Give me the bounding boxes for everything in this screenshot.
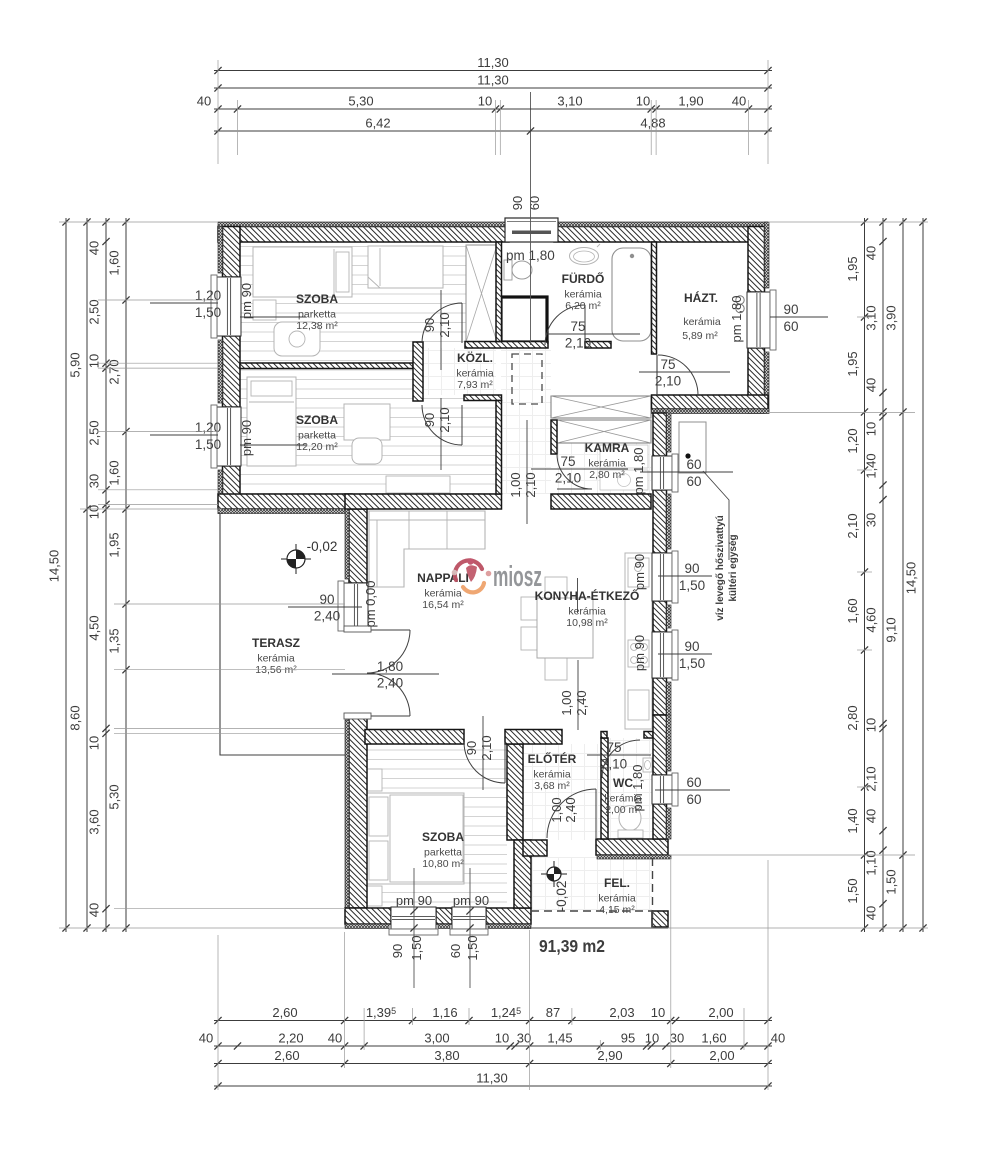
svg-text:FÜRDŐ: FÜRDŐ [562, 271, 605, 286]
svg-text:-0,02: -0,02 [554, 881, 569, 912]
svg-text:4,60: 4,60 [864, 607, 879, 632]
svg-text:HÁZT.: HÁZT. [684, 290, 718, 305]
svg-text:1,95: 1,95 [845, 351, 860, 376]
svg-text:40: 40 [732, 94, 746, 109]
svg-text:2,50: 2,50 [87, 420, 102, 445]
svg-text:4,15 m²: 4,15 m² [599, 904, 635, 916]
svg-text:TERASZ: TERASZ [252, 636, 300, 650]
svg-text:10: 10 [87, 505, 102, 519]
svg-text:2,60: 2,60 [274, 1048, 299, 1063]
svg-text:1,20: 1,20 [845, 428, 860, 453]
svg-text:8,60: 8,60 [68, 705, 83, 730]
svg-text:pm 0,00: pm 0,00 [363, 581, 378, 628]
svg-text:KÖZL.: KÖZL. [457, 350, 493, 365]
svg-text:12,38 m²: 12,38 m² [296, 320, 338, 332]
svg-text:SZOBA: SZOBA [296, 413, 338, 427]
svg-text:parketta: parketta [298, 309, 336, 321]
svg-text:5,90: 5,90 [68, 352, 83, 377]
svg-text:40: 40 [864, 809, 879, 823]
svg-text:6,20 m²: 6,20 m² [565, 300, 601, 312]
svg-text:1,35: 1,35 [107, 628, 122, 653]
svg-text:90: 90 [510, 196, 525, 210]
svg-text:30: 30 [517, 1031, 531, 1046]
svg-text:1,20: 1,20 [195, 288, 221, 303]
svg-text:3,10: 3,10 [557, 94, 582, 109]
svg-text:1,00: 1,00 [549, 797, 564, 822]
svg-text:1,50: 1,50 [884, 869, 899, 894]
svg-text:kerámia: kerámia [568, 606, 606, 618]
svg-text:2,00: 2,00 [709, 1048, 734, 1063]
svg-text:30: 30 [87, 474, 102, 488]
svg-text:2,80: 2,80 [845, 705, 860, 730]
svg-text:3,90: 3,90 [884, 305, 899, 330]
svg-text:1,95: 1,95 [107, 532, 122, 557]
svg-text:miosz: miosz [493, 561, 542, 593]
svg-text:75: 75 [606, 740, 621, 755]
svg-text:2,10: 2,10 [655, 374, 681, 389]
svg-text:40: 40 [199, 1031, 213, 1046]
svg-text:60: 60 [686, 792, 701, 807]
svg-text:pm 1,80: pm 1,80 [729, 296, 744, 343]
svg-text:1,50: 1,50 [195, 305, 221, 320]
svg-text:kerámia: kerámia [456, 368, 494, 380]
svg-text:pm 90: pm 90 [239, 283, 254, 319]
svg-text:SZOBA: SZOBA [296, 292, 338, 306]
svg-text:2,10: 2,10 [523, 472, 538, 497]
svg-text:7,93 m²: 7,93 m² [457, 379, 493, 391]
svg-text:3,10: 3,10 [864, 305, 879, 330]
svg-text:40: 40 [87, 903, 102, 917]
svg-text:2,10: 2,10 [479, 735, 494, 760]
svg-text:10: 10 [864, 422, 879, 436]
svg-text:90: 90 [684, 561, 699, 576]
svg-text:1,50: 1,50 [409, 935, 424, 960]
svg-text:12,20 m²: 12,20 m² [296, 441, 338, 453]
svg-text:parketta: parketta [298, 430, 336, 442]
svg-text:60: 60 [686, 775, 701, 790]
svg-text:3,68 m²: 3,68 m² [534, 780, 570, 792]
svg-text:30: 30 [670, 1031, 684, 1046]
svg-text:1,90: 1,90 [678, 94, 703, 109]
svg-text:2,10: 2,10 [437, 312, 452, 337]
svg-text:75: 75 [560, 454, 575, 469]
svg-text:1,95: 1,95 [845, 256, 860, 281]
svg-text:90: 90 [390, 944, 405, 958]
svg-text:95: 95 [621, 1031, 635, 1046]
svg-text:pm 1,80: pm 1,80 [631, 448, 646, 495]
svg-text:1,50: 1,50 [845, 878, 860, 903]
svg-text:40: 40 [771, 1031, 785, 1046]
svg-text:4,88: 4,88 [640, 116, 665, 131]
svg-text:10: 10 [87, 354, 102, 368]
svg-text:pm 90: pm 90 [632, 554, 647, 590]
svg-text:2,60: 2,60 [272, 1005, 297, 1020]
svg-text:1,50: 1,50 [465, 935, 480, 960]
svg-text:NAPPALI: NAPPALI [417, 571, 469, 585]
svg-text:pm 90: pm 90 [632, 635, 647, 671]
svg-text:91,39 m2: 91,39 m2 [539, 936, 605, 956]
svg-text:10: 10 [645, 1031, 659, 1046]
svg-text:3,60: 3,60 [87, 809, 102, 834]
svg-text:11,30: 11,30 [476, 1071, 508, 1086]
svg-text:pm 90: pm 90 [453, 893, 489, 908]
svg-text:kerámia: kerámia [564, 289, 602, 301]
svg-text:parketta: parketta [424, 847, 462, 859]
svg-text:9,10: 9,10 [884, 617, 899, 642]
svg-text:90: 90 [464, 741, 479, 755]
svg-text:kerámia: kerámia [588, 458, 626, 470]
svg-text:1,40: 1,40 [845, 808, 860, 833]
svg-text:60: 60 [527, 196, 542, 210]
svg-text:10,80 m²: 10,80 m² [422, 858, 464, 870]
svg-text:5,89 m²: 5,89 m² [682, 330, 718, 342]
svg-text:90: 90 [422, 413, 437, 427]
svg-text:14,50: 14,50 [47, 550, 62, 583]
svg-text:2,40: 2,40 [574, 690, 589, 715]
svg-text:3,80: 3,80 [434, 1048, 459, 1063]
svg-text:2,10: 2,10 [565, 336, 591, 351]
svg-text:40: 40 [197, 94, 211, 109]
svg-text:2,10: 2,10 [864, 766, 879, 791]
svg-text:1,60: 1,60 [107, 250, 122, 275]
svg-text:4,50: 4,50 [87, 615, 102, 640]
svg-text:1,40: 1,40 [864, 453, 879, 478]
svg-text:16,54 m²: 16,54 m² [422, 599, 464, 611]
svg-text:1,16: 1,16 [432, 1005, 457, 1020]
svg-text:60: 60 [783, 319, 798, 334]
svg-text:SZOBA: SZOBA [422, 830, 464, 844]
svg-text:40: 40 [87, 241, 102, 255]
svg-text:90: 90 [319, 592, 334, 607]
svg-text:KAMRA: KAMRA [585, 441, 630, 455]
svg-text:víz levegő hőszivattyú: víz levegő hőszivattyú [715, 515, 726, 621]
svg-text:FEL.: FEL. [604, 876, 630, 890]
svg-text:60: 60 [448, 944, 463, 958]
svg-text:90: 90 [684, 639, 699, 654]
svg-text:11,30: 11,30 [477, 73, 509, 88]
svg-text:90: 90 [422, 318, 437, 332]
svg-text:1,60: 1,60 [107, 460, 122, 485]
svg-text:2,40: 2,40 [377, 676, 403, 691]
svg-text:14,50: 14,50 [904, 562, 919, 595]
svg-text:40: 40 [864, 378, 879, 392]
svg-text:1,60: 1,60 [845, 598, 860, 623]
svg-text:40: 40 [328, 1031, 342, 1046]
svg-text:kerámia: kerámia [683, 316, 721, 328]
svg-text:2,10: 2,10 [555, 471, 581, 486]
svg-text:kerámia: kerámia [598, 893, 636, 905]
svg-text:1,00: 1,00 [559, 690, 574, 715]
svg-text:2,10: 2,10 [845, 513, 860, 538]
svg-text:6,42: 6,42 [365, 116, 390, 131]
svg-text:2,10: 2,10 [601, 757, 627, 772]
svg-text:2,03: 2,03 [609, 1005, 634, 1020]
svg-text:3,00: 3,00 [424, 1031, 449, 1046]
svg-text:KONYHA-ÉTKEZŐ: KONYHA-ÉTKEZŐ [535, 588, 640, 603]
svg-text:75: 75 [660, 357, 675, 372]
svg-text:1,20: 1,20 [195, 420, 221, 435]
svg-text:90: 90 [783, 302, 798, 317]
svg-text:1,80: 1,80 [377, 659, 403, 674]
svg-text:2,10: 2,10 [437, 407, 452, 432]
svg-text:kerámia: kerámia [424, 588, 462, 600]
svg-text:87: 87 [546, 1005, 560, 1020]
svg-text:2,40: 2,40 [314, 609, 340, 624]
svg-text:10: 10 [864, 718, 879, 732]
svg-text:10: 10 [87, 736, 102, 750]
svg-text:10,98 m²: 10,98 m² [566, 617, 608, 629]
svg-text:2,50: 2,50 [87, 299, 102, 324]
svg-text:2,80 m²: 2,80 m² [589, 469, 625, 481]
svg-text:1,00: 1,00 [508, 472, 523, 497]
svg-text:-0,02: -0,02 [307, 539, 338, 554]
svg-text:1,10: 1,10 [864, 850, 879, 875]
svg-text:10: 10 [495, 1031, 509, 1046]
svg-text:10: 10 [651, 1005, 665, 1020]
svg-text:60: 60 [686, 474, 701, 489]
svg-text:kerámia: kerámia [533, 769, 571, 781]
svg-text:30: 30 [864, 513, 879, 527]
svg-text:pm 90: pm 90 [239, 420, 254, 456]
svg-text:2,90: 2,90 [597, 1048, 622, 1063]
svg-text:1,50: 1,50 [679, 656, 705, 671]
svg-text:2,20: 2,20 [278, 1031, 303, 1046]
svg-text:11,30: 11,30 [477, 55, 509, 70]
svg-text:40: 40 [864, 246, 879, 260]
svg-text:5,30: 5,30 [348, 94, 373, 109]
svg-text:1,50: 1,50 [195, 437, 221, 452]
svg-text:1,60: 1,60 [701, 1031, 726, 1046]
svg-text:2,00: 2,00 [708, 1005, 733, 1020]
svg-text:kerámia: kerámia [257, 653, 295, 665]
svg-text:pm 1,80: pm 1,80 [630, 765, 645, 812]
svg-text:10: 10 [636, 94, 650, 109]
svg-text:10: 10 [478, 94, 492, 109]
svg-text:60: 60 [686, 457, 701, 472]
svg-text:kültéri egység: kültéri egység [728, 534, 739, 601]
svg-text:5,30: 5,30 [107, 784, 122, 809]
svg-text:2,40: 2,40 [563, 797, 578, 822]
svg-text:40: 40 [864, 906, 879, 920]
svg-text:ELŐTÉR: ELŐTÉR [528, 751, 577, 766]
svg-text:1,45: 1,45 [547, 1031, 572, 1046]
svg-text:75: 75 [570, 319, 585, 334]
svg-text:1,50: 1,50 [679, 578, 705, 593]
